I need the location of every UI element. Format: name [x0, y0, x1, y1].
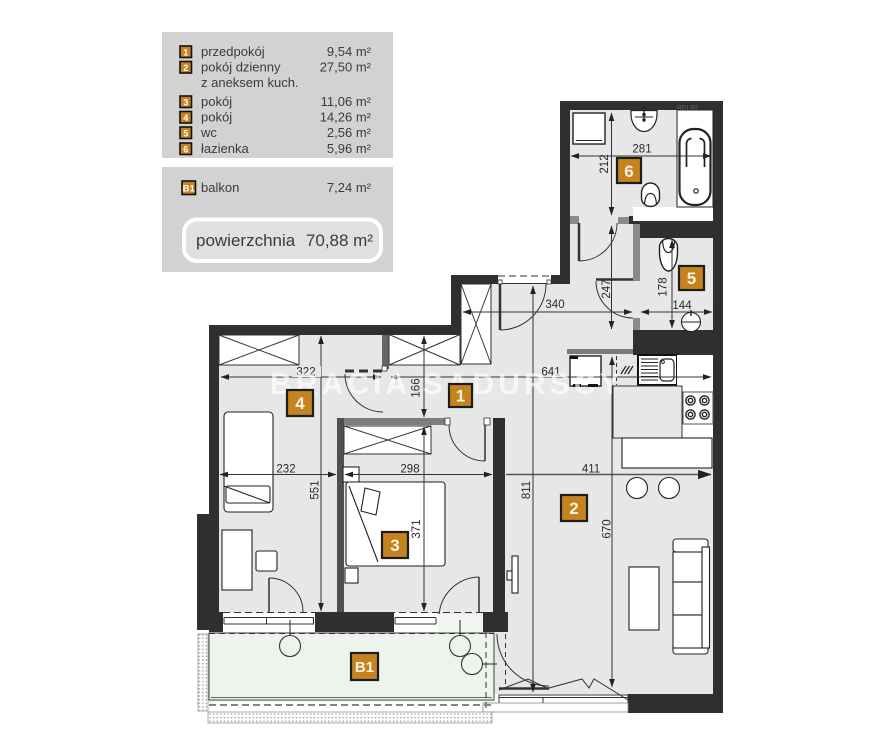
svg-text:3: 3	[390, 536, 399, 555]
svg-text:281: 281	[632, 144, 651, 156]
svg-text:pokój: pokój	[201, 94, 232, 109]
svg-text:4: 4	[295, 394, 305, 413]
svg-text:4: 4	[183, 113, 188, 123]
svg-text:1: 1	[183, 48, 188, 58]
svg-text:6: 6	[624, 162, 633, 181]
svg-text:6: 6	[183, 145, 188, 155]
svg-text:212: 212	[599, 154, 611, 173]
svg-text:7,24 m²: 7,24 m²	[327, 180, 372, 195]
svg-text:2: 2	[183, 63, 188, 73]
svg-text:11,06 m²: 11,06 m²	[321, 94, 372, 109]
svg-text:3: 3	[183, 98, 188, 108]
svg-text:2: 2	[569, 499, 578, 518]
svg-text:70,88 m²: 70,88 m²	[306, 231, 373, 250]
svg-text:5: 5	[687, 269, 696, 288]
svg-text:pokój dzienny: pokój dzienny	[201, 60, 281, 75]
svg-text:5: 5	[183, 129, 188, 139]
svg-text:5,96 m²: 5,96 m²	[327, 141, 372, 156]
svg-text:14,26 m²: 14,26 m²	[320, 110, 372, 125]
svg-text:811: 811	[521, 481, 533, 499]
svg-text:2,56 m²: 2,56 m²	[327, 125, 372, 140]
svg-text:144: 144	[672, 300, 692, 312]
svg-text:411: 411	[582, 464, 600, 476]
svg-text:powierzchnia: powierzchnia	[196, 231, 296, 250]
svg-text:232: 232	[276, 464, 295, 476]
svg-text:BRACIA SADURSCY: BRACIA SADURSCY	[270, 368, 624, 401]
svg-text:298: 298	[400, 464, 419, 476]
svg-text:1: 1	[456, 387, 465, 406]
svg-text:247: 247	[601, 279, 613, 298]
svg-text:178: 178	[658, 277, 670, 296]
svg-text:przedpokój: przedpokój	[201, 44, 265, 59]
svg-text:371: 371	[411, 519, 423, 538]
svg-text:łazienka: łazienka	[201, 141, 249, 156]
svg-text:670: 670	[602, 519, 614, 538]
svg-text:B1: B1	[355, 659, 374, 676]
svg-text:551: 551	[310, 480, 322, 499]
svg-text:27,50 m²: 27,50 m²	[320, 60, 372, 75]
svg-text:balkon: balkon	[201, 180, 239, 195]
svg-text:B1: B1	[183, 184, 196, 195]
svg-text:340: 340	[545, 299, 564, 311]
svg-text:pokój: pokój	[201, 110, 232, 125]
svg-text:9,54 m²: 9,54 m²	[327, 44, 372, 59]
svg-text:wc: wc	[200, 125, 217, 140]
svg-text:REI 60: REI 60	[677, 105, 698, 112]
svg-text:z aneksem kuch.: z aneksem kuch.	[201, 75, 299, 90]
